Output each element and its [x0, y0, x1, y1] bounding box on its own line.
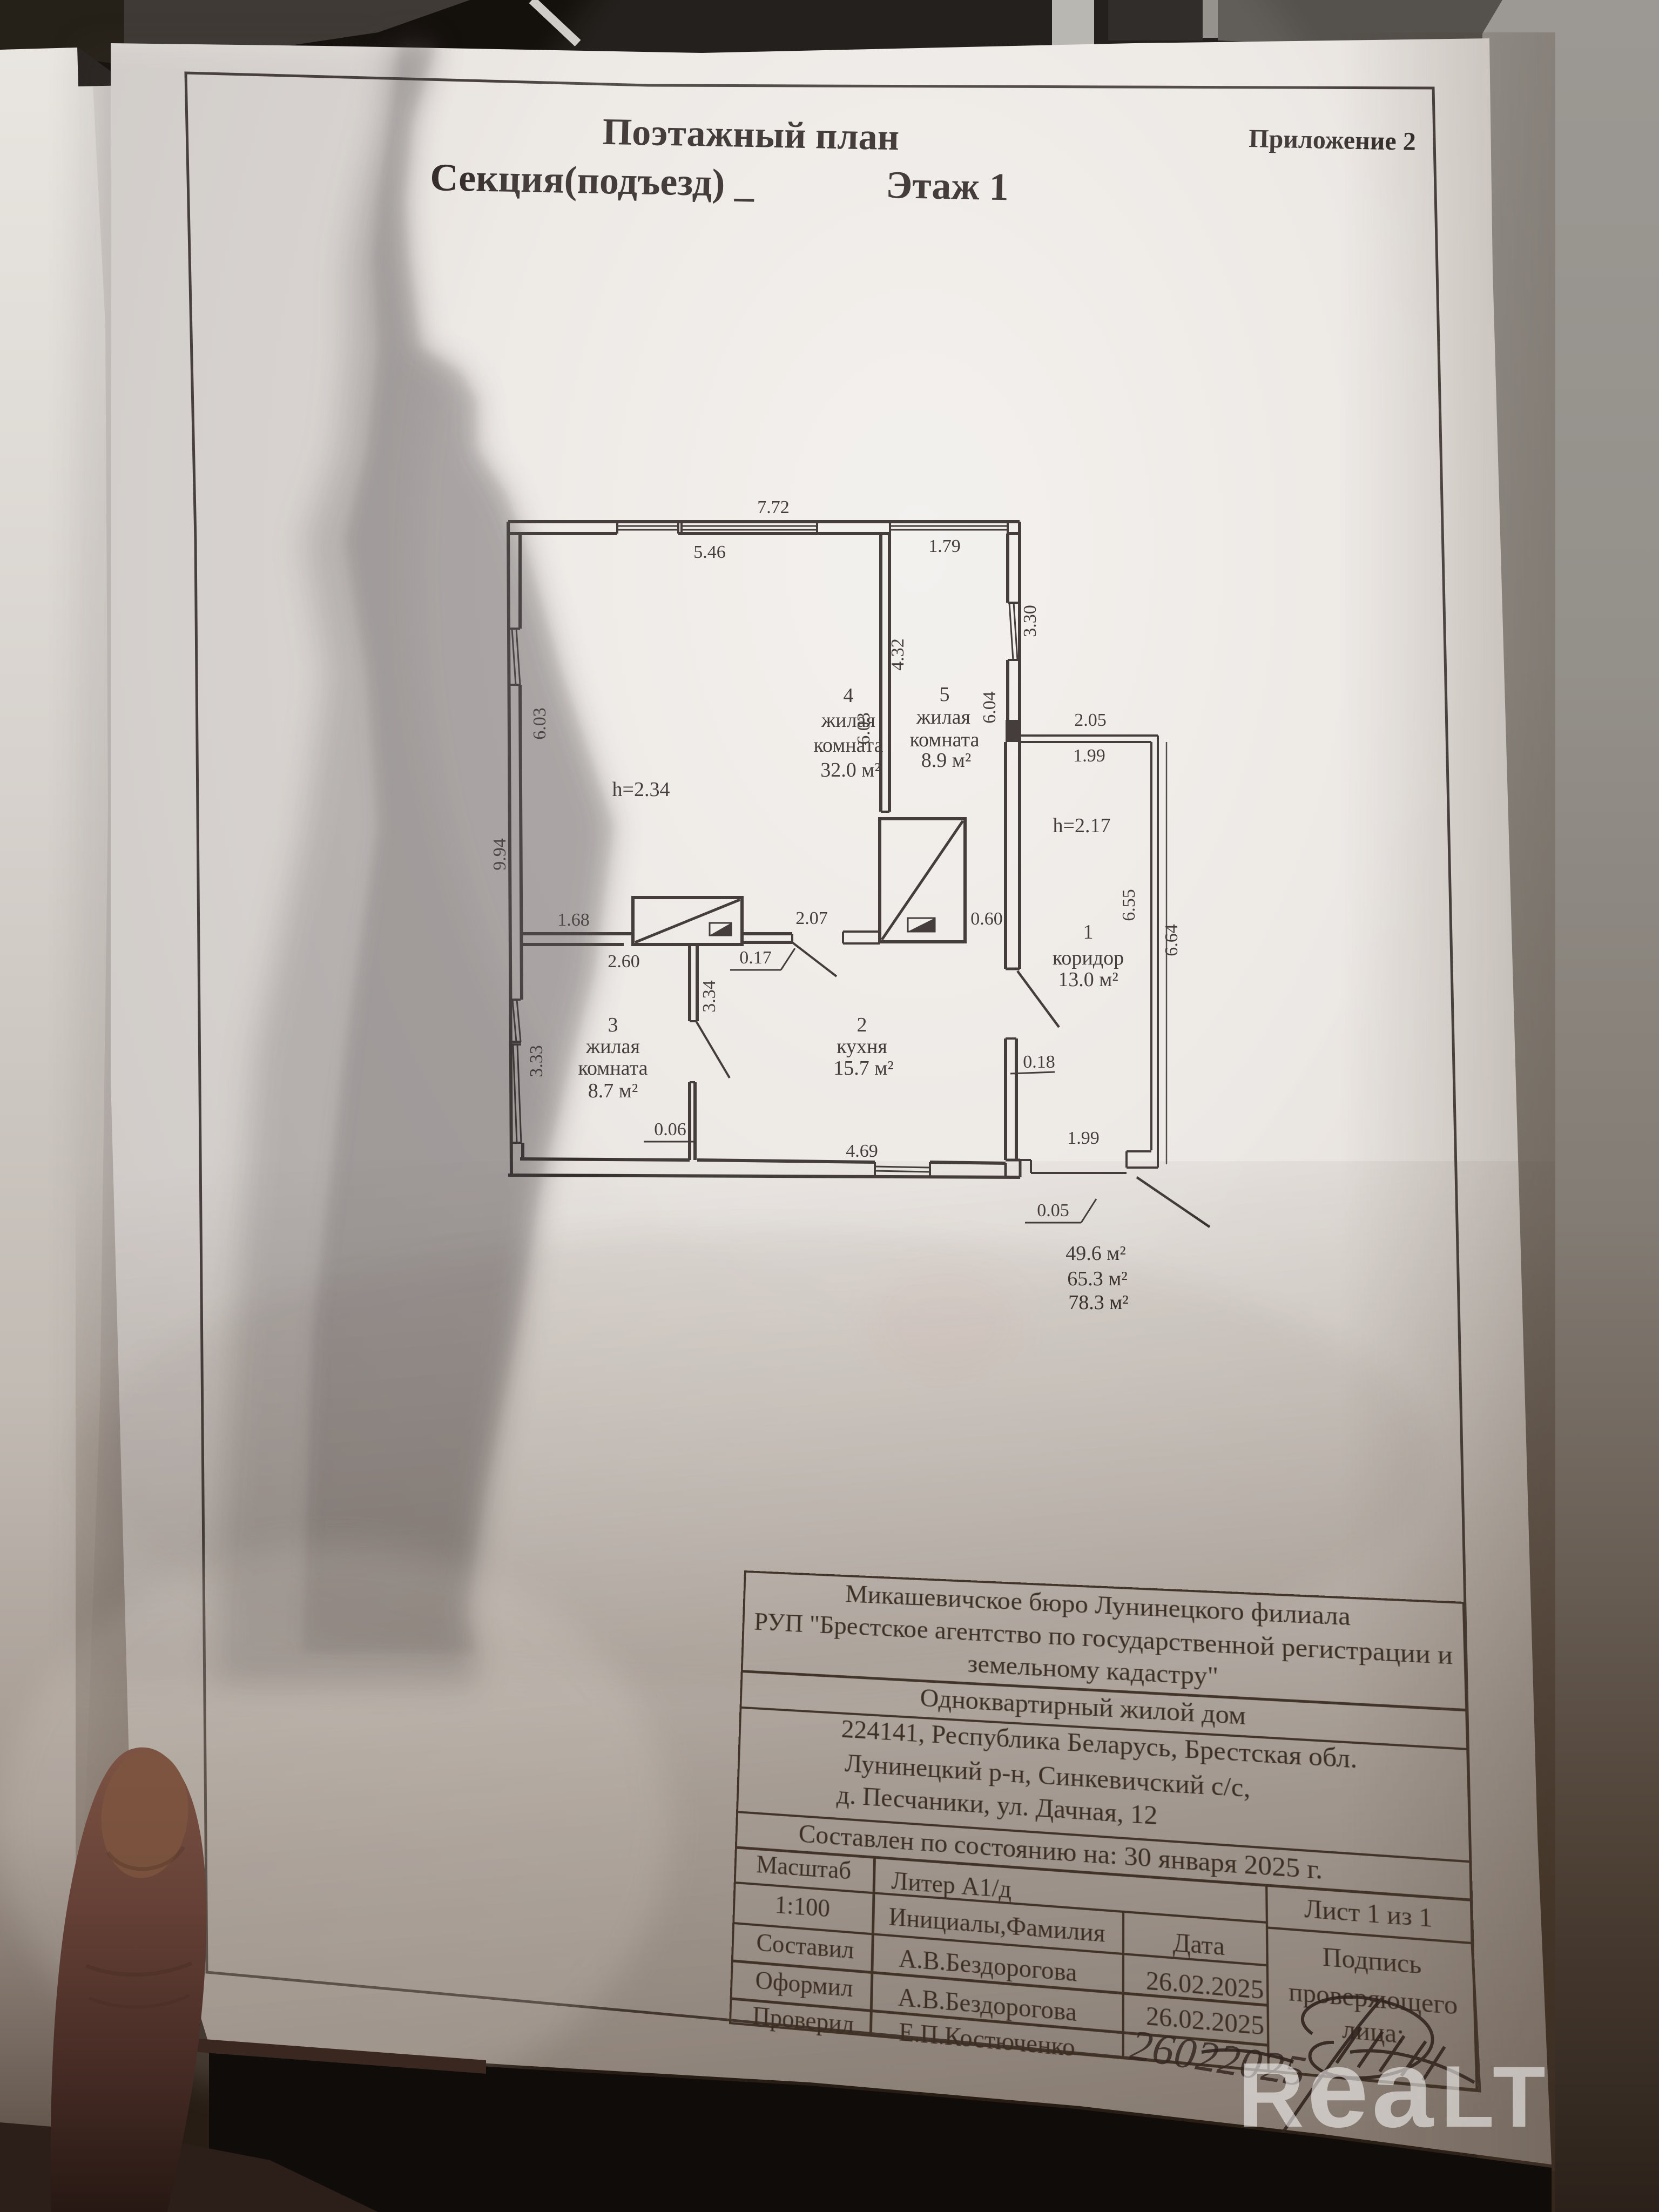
svg-text:4.32: 4.32 — [888, 638, 908, 671]
svg-text:коридор: коридор — [1053, 947, 1124, 969]
svg-text:2.60: 2.60 — [608, 952, 640, 972]
svg-text:78.3 м²: 78.3 м² — [1068, 1291, 1128, 1314]
svg-text:13.0 м²: 13.0 м² — [1058, 968, 1118, 991]
svg-text:0.18: 0.18 — [1023, 1052, 1055, 1072]
svg-text:6.04: 6.04 — [980, 691, 1000, 724]
svg-text:4: 4 — [844, 684, 854, 707]
svg-text:49.6 м²: 49.6 м² — [1065, 1242, 1125, 1265]
svg-text:8.7 м²: 8.7 м² — [588, 1080, 638, 1102]
svg-text:0.60: 0.60 — [970, 909, 1003, 929]
svg-text:комната: комната — [578, 1057, 648, 1080]
svg-text:жилая: жилая — [585, 1035, 640, 1058]
svg-text:5.46: 5.46 — [693, 542, 726, 562]
svg-text:6.64: 6.64 — [1162, 924, 1182, 956]
svg-text:5: 5 — [940, 683, 950, 706]
svg-text:h=2.34: h=2.34 — [612, 778, 670, 801]
svg-text:2.05: 2.05 — [1074, 710, 1107, 730]
svg-text:жилая: жилая — [916, 706, 970, 729]
svg-text:65.3 м²: 65.3 м² — [1067, 1267, 1127, 1290]
svg-text:2.07: 2.07 — [795, 908, 828, 928]
svg-text:комната: комната — [813, 734, 883, 757]
svg-text:1.79: 1.79 — [928, 536, 961, 556]
svg-text:8.9 м²: 8.9 м² — [921, 749, 971, 772]
svg-text:7.72: 7.72 — [757, 497, 790, 517]
svg-text:9.94: 9.94 — [490, 838, 510, 871]
svg-text:0.06: 0.06 — [654, 1120, 686, 1139]
svg-text:2: 2 — [857, 1014, 867, 1036]
svg-text:4.69: 4.69 — [846, 1141, 878, 1161]
svg-text:3.33: 3.33 — [527, 1045, 547, 1077]
svg-text:Поэтажный план: Поэтажный план — [602, 111, 900, 159]
svg-text:3: 3 — [608, 1014, 618, 1036]
svg-text:кухня: кухня — [837, 1035, 887, 1058]
svg-text:0.17: 0.17 — [739, 948, 772, 968]
svg-text:0.05: 0.05 — [1037, 1201, 1069, 1220]
svg-text:3.34: 3.34 — [699, 980, 719, 1013]
svg-text:3.30: 3.30 — [1020, 605, 1040, 637]
svg-text:Приложение 2: Приложение 2 — [1249, 124, 1416, 156]
svg-text:6.55: 6.55 — [1119, 889, 1139, 921]
svg-text:15.7 м²: 15.7 м² — [833, 1057, 893, 1080]
svg-text:32.0 м²: 32.0 м² — [820, 759, 880, 781]
svg-text:1.99: 1.99 — [1067, 1128, 1100, 1148]
svg-text:h=2.17: h=2.17 — [1053, 814, 1111, 837]
svg-text:6.03: 6.03 — [530, 707, 550, 740]
svg-text:Секция(подъезд) _: Секция(подъезд) _ — [430, 156, 755, 205]
svg-text:1.99: 1.99 — [1073, 746, 1105, 766]
svg-text:комната: комната — [909, 729, 979, 751]
svg-text:1.68: 1.68 — [557, 910, 590, 930]
svg-text:1: 1 — [1083, 921, 1094, 943]
svg-text:Этаж 1: Этаж 1 — [886, 163, 1009, 208]
svg-text:жилая: жилая — [821, 709, 875, 732]
